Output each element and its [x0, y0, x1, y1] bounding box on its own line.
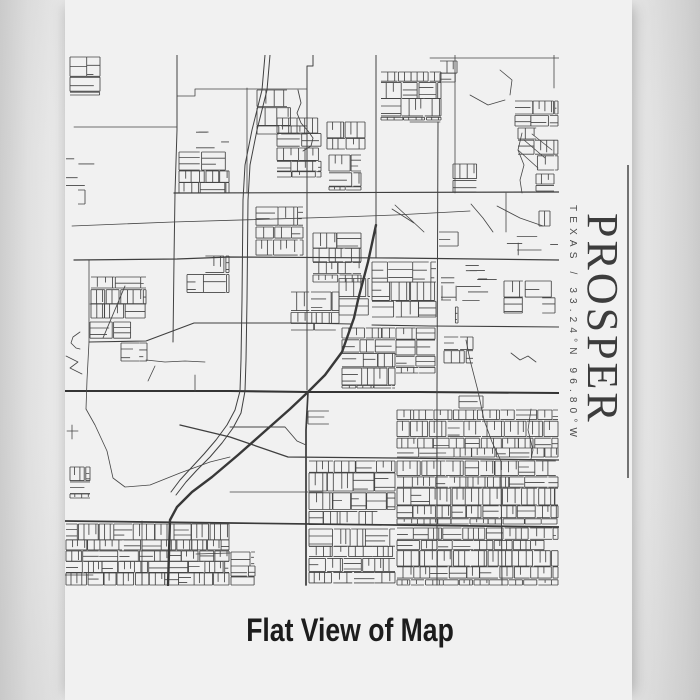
svg-text:TEXAS / 33.24°N 96.80°W: TEXAS / 33.24°N 96.80°W [567, 205, 578, 442]
svg-text:PROSPER: PROSPER [578, 213, 627, 425]
